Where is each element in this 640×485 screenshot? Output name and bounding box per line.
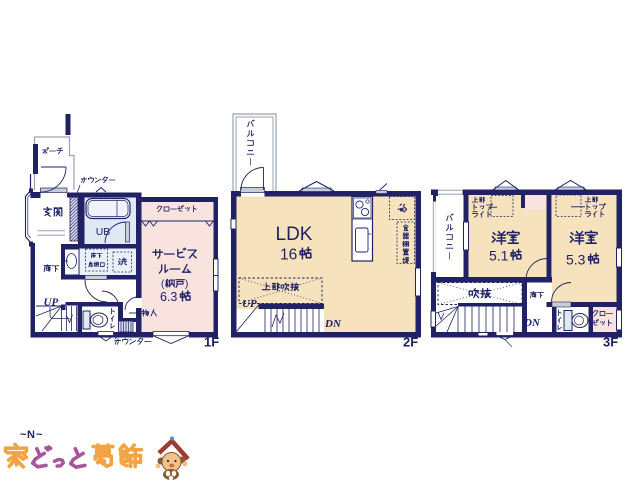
svg-text:DN: DN <box>324 318 342 330</box>
svg-text:UP: UP <box>242 298 257 310</box>
svg-text:6.3: 6.3 <box>160 290 177 304</box>
svg-text:5.3: 5.3 <box>566 252 586 268</box>
svg-text:~: ~ <box>36 429 43 441</box>
svg-text:5.1: 5.1 <box>489 248 509 264</box>
svg-text:N: N <box>27 429 35 441</box>
svg-text:~: ~ <box>20 429 27 441</box>
svg-text:1F: 1F <box>204 335 219 350</box>
svg-text:16: 16 <box>280 247 297 264</box>
svg-text:LDK: LDK <box>276 224 313 245</box>
svg-text:3F: 3F <box>603 335 618 350</box>
svg-text:2F: 2F <box>403 335 418 350</box>
svg-text:UP: UP <box>44 297 59 309</box>
svg-text:DN: DN <box>523 317 541 329</box>
svg-text:): ) <box>185 279 188 290</box>
